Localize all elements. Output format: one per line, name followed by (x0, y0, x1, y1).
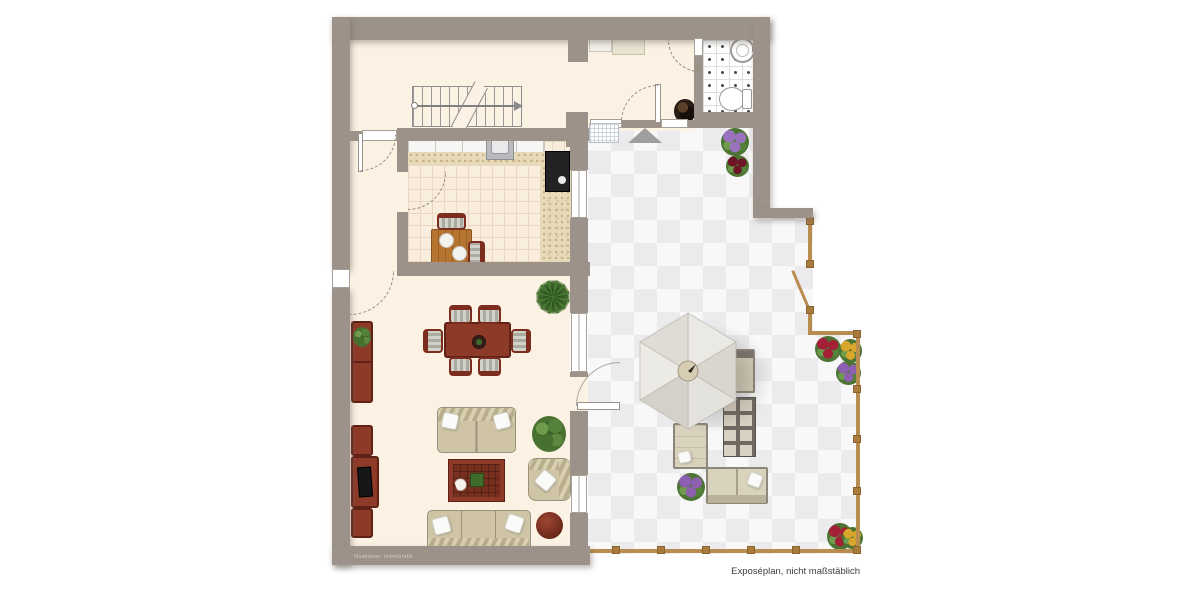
living-window (571, 475, 587, 513)
toilet-cistern (742, 89, 752, 109)
sofa-pillow (441, 412, 460, 431)
dining-chair (423, 329, 443, 353)
bush-plant (532, 416, 566, 452)
outdoor-sofa-back (708, 495, 766, 503)
dining-chair (478, 305, 501, 324)
stairs-start-circle (411, 102, 418, 109)
living-window (571, 313, 587, 372)
sofa-pillow (431, 515, 452, 536)
entrance-opening (332, 269, 350, 288)
plate (439, 233, 454, 248)
outdoor-sofa (706, 467, 768, 504)
lounger-pillow (677, 450, 692, 464)
armchair (528, 458, 571, 501)
table-bowl-plant (476, 339, 482, 345)
fence-post (806, 217, 814, 225)
floor-plan: Illustration: ImmoGrafik Exposéplan, nic… (0, 0, 1200, 600)
wall-east (570, 276, 588, 313)
flower-pot-lavender (721, 128, 749, 156)
fence-rail (590, 549, 860, 553)
plate (452, 246, 467, 261)
wall-kitchen-left (397, 141, 408, 172)
dining-chair (449, 357, 472, 376)
fence-rail (856, 334, 860, 554)
fence-post (702, 546, 710, 554)
coffee-table (449, 460, 504, 501)
two-seat-sofa (437, 407, 516, 453)
dining-chair (511, 329, 531, 353)
kitchen-chair (437, 213, 466, 230)
wall-bathroom-bottom (694, 112, 770, 128)
table-figurine (454, 477, 470, 496)
dining-table (444, 322, 511, 358)
fence-post (806, 260, 814, 268)
fence-post (853, 546, 861, 554)
tv-lowboard (351, 456, 379, 508)
parasol-icon (636, 311, 740, 431)
table-motif (470, 473, 484, 487)
kitchen-worktop-speckled (408, 152, 545, 165)
fence-post (747, 546, 755, 554)
armchair-back (559, 459, 570, 499)
round-ottoman (536, 512, 563, 539)
fence-post (853, 385, 861, 393)
terrace-door-opening (661, 119, 688, 128)
flower-pot-dark-red (726, 155, 749, 177)
outdoor-sofa-pillow (746, 471, 764, 489)
outer-wall-top (332, 17, 770, 40)
fence-post (806, 306, 814, 314)
stove-icon (545, 151, 570, 192)
outside-area (813, 208, 863, 335)
outer-wall-left (332, 288, 350, 565)
basin-inner (736, 44, 749, 57)
dining-chair (449, 305, 472, 324)
fence-post (853, 435, 861, 443)
entrance-marker-icon (628, 128, 662, 143)
sofa-pillow (492, 411, 511, 430)
wall-kitchen-top (397, 128, 590, 141)
radiator-grate-icon (589, 123, 619, 143)
fence-post (792, 546, 800, 554)
tv-screen (357, 467, 373, 498)
palm-plant (536, 280, 570, 314)
wall-east (570, 218, 588, 262)
stairs-walk-line (415, 105, 515, 107)
fence-post (612, 546, 620, 554)
stairs-direction-arrow (514, 101, 523, 111)
wall-step (753, 208, 813, 218)
wall-east (570, 513, 588, 548)
disclaimer-label: Exposéplan, nicht maßstäblich (700, 566, 860, 577)
wall-kitchen-left (397, 212, 408, 264)
wall-hall-divider (568, 17, 588, 62)
wall-kitchen-bottom (397, 262, 590, 276)
fence-post (853, 330, 861, 338)
sideboard-plant (353, 327, 371, 347)
watermark: Illustration: ImmoGrafik (354, 554, 474, 560)
lowboard (351, 508, 373, 538)
wall-east (570, 411, 588, 475)
fence-post (657, 546, 665, 554)
armchair-pillow (534, 469, 558, 493)
flower-pot-red (815, 336, 841, 362)
wall-terrace-stub (566, 112, 588, 147)
sofa-pillow (504, 513, 525, 534)
wall-east (570, 147, 588, 170)
fence-post (853, 487, 861, 495)
outer-wall-left (332, 17, 350, 269)
dining-chair (478, 357, 501, 376)
flower-pot-purple (677, 473, 705, 501)
kitchen-window (571, 170, 587, 218)
lowboard (351, 425, 373, 456)
stove-fan (558, 176, 566, 184)
